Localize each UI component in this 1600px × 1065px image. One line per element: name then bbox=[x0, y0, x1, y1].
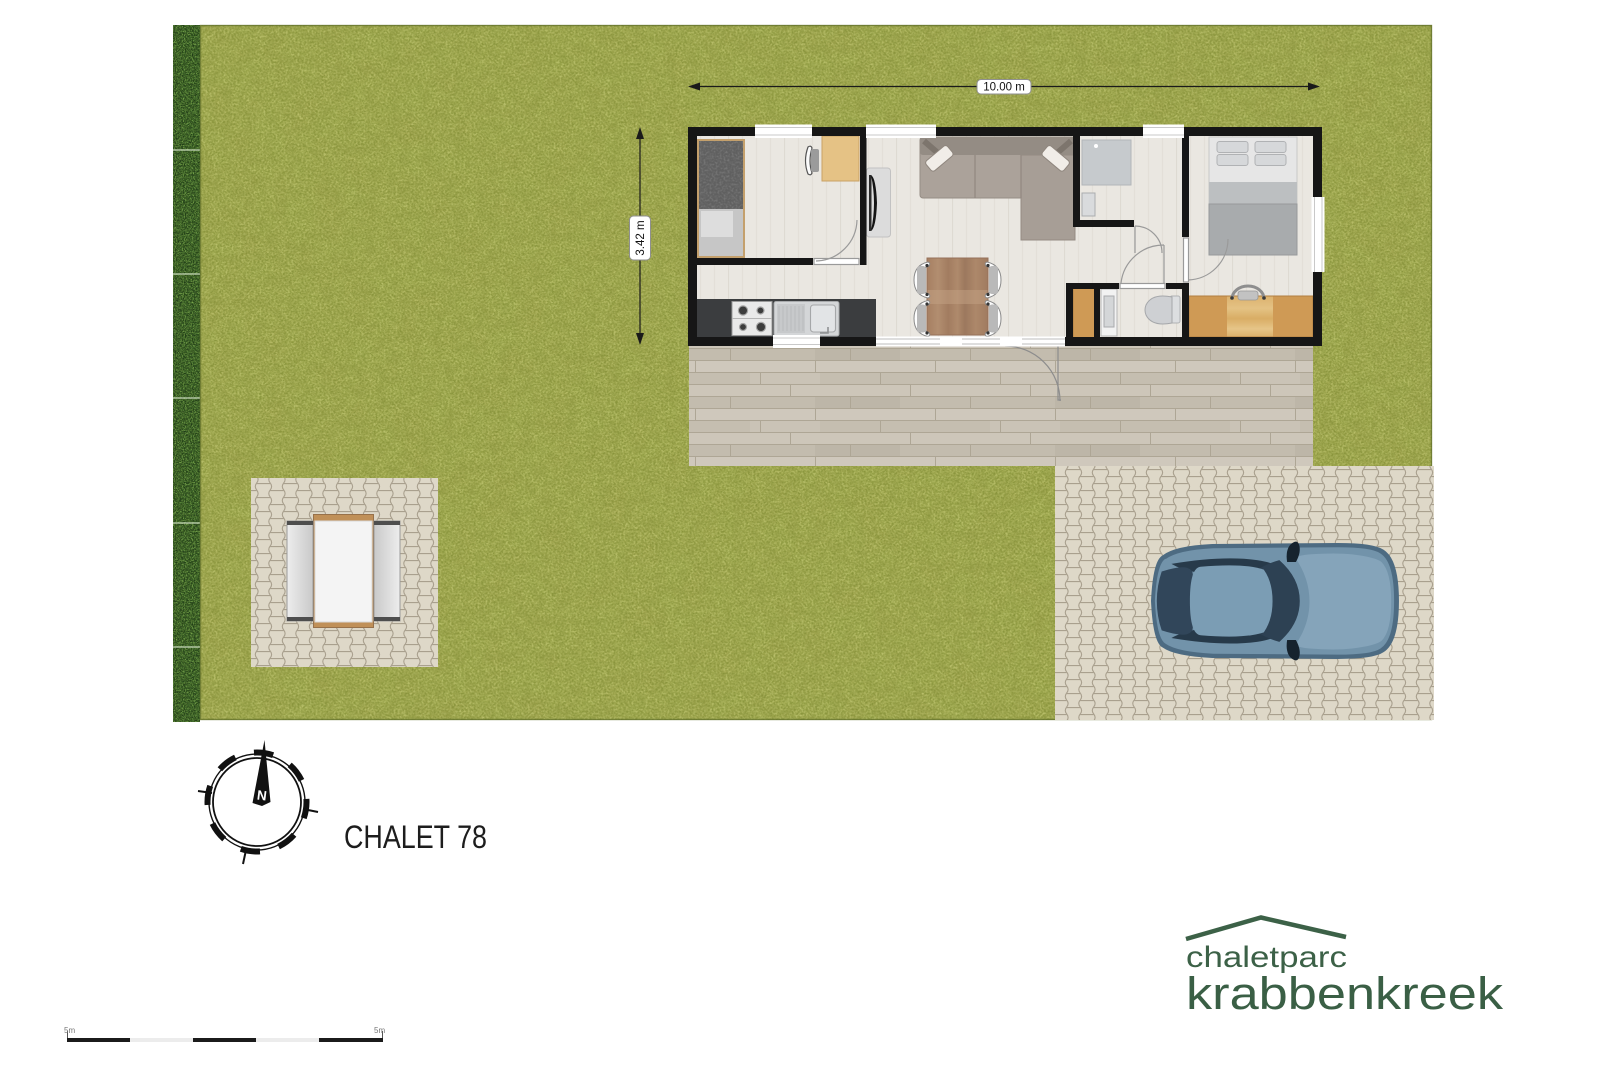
svg-text:N: N bbox=[256, 787, 268, 803]
svg-text:5m: 5m bbox=[64, 1026, 75, 1035]
svg-text:10.00 m: 10.00 m bbox=[983, 82, 1025, 94]
svg-text:krabbenkreek: krabbenkreek bbox=[1186, 968, 1504, 1019]
svg-text:3.42 m: 3.42 m bbox=[635, 220, 647, 255]
svg-text:5m: 5m bbox=[374, 1026, 385, 1035]
svg-text:CHALET 78: CHALET 78 bbox=[344, 819, 487, 855]
